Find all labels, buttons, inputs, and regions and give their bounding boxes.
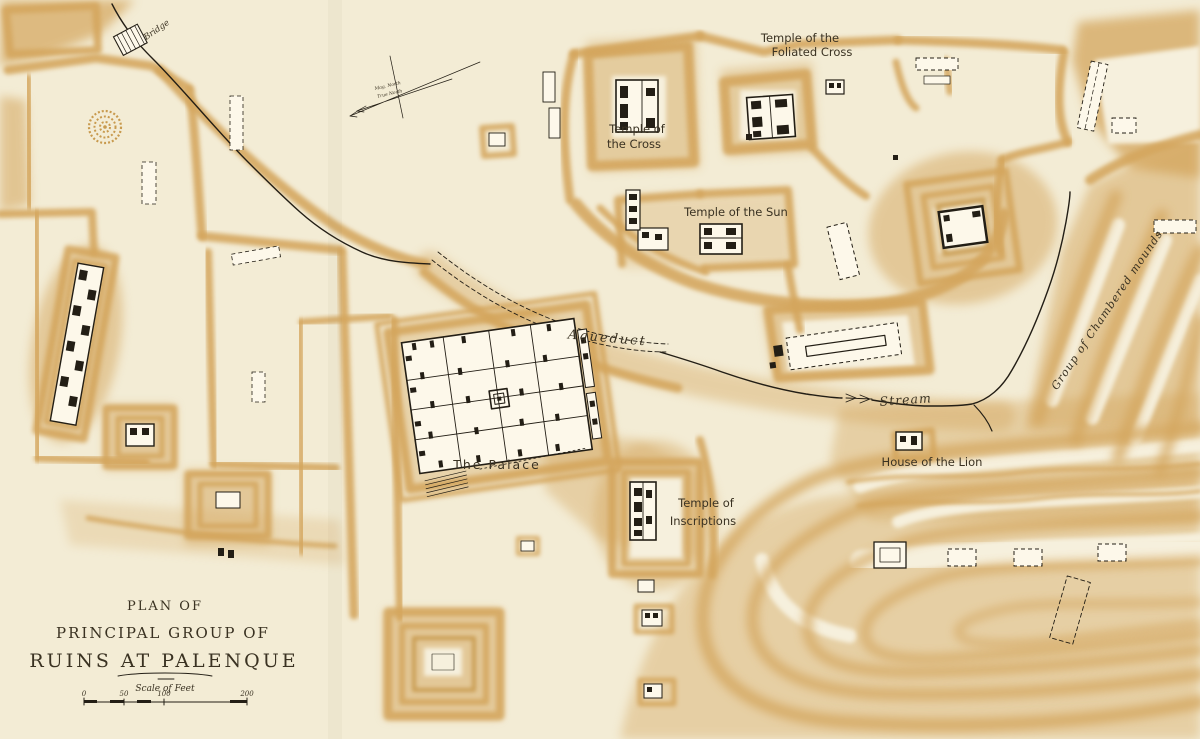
- title-line-3: RUINS AT PALENQUE: [29, 650, 298, 672]
- building-pyramid-temple: [939, 206, 988, 248]
- building-north-bar-2: [549, 108, 560, 138]
- building-north-square: [489, 133, 505, 146]
- building-northeast-dashed-small: [1112, 118, 1136, 133]
- building-top-bar-2: [924, 76, 950, 84]
- label-temple-inscriptions-1: Temple of: [677, 496, 735, 510]
- building-bar-b: [252, 372, 265, 402]
- building-top-black: [826, 80, 844, 94]
- building-temple-of-the-sun: [700, 224, 742, 254]
- palenque-map-svg: Mag. North True North Bridge Temple of t…: [0, 0, 1200, 739]
- label-house-of-the-lion: House of the Lion: [882, 455, 983, 469]
- building-right-mid-bar: [1154, 220, 1196, 233]
- building-bottom-row-1: [874, 542, 906, 568]
- label-temple-cross-2: the Cross: [607, 137, 661, 151]
- label-temple-sun: Temple of the Sun: [683, 205, 788, 219]
- scale-tick-100: 100: [157, 690, 171, 698]
- building-top-bar-1: [916, 58, 958, 70]
- building-inscriptions-small-3: [644, 684, 662, 698]
- building-tiny-mid: [521, 541, 534, 551]
- label-temple-cross-1: Temple of: [608, 122, 666, 136]
- label-temple-foliated-cross-2: Foliated Cross: [772, 45, 853, 59]
- building-inscriptions-small-1: [638, 580, 654, 592]
- building-north-bar-1: [543, 72, 555, 102]
- label-the-palace: The Palace: [452, 457, 541, 472]
- palenque-map-scan: Mag. North True North Bridge Temple of t…: [0, 0, 1200, 739]
- building-sun-north-bar: [626, 190, 640, 230]
- title-line-1: PLAN OF: [127, 599, 203, 614]
- fold-shadow: [328, 0, 342, 739]
- building-dot-2: [893, 155, 898, 160]
- title-line-2: PRINCIPAL GROUP OF: [56, 624, 270, 642]
- building-temple-of-the-foliated-cross: [747, 94, 796, 139]
- building-west-small-temple: [126, 424, 154, 446]
- label-temple-foliated-cross-1: Temple of the: [760, 31, 839, 45]
- building-bottom-row-2: [948, 549, 976, 566]
- building-bar-c: [142, 162, 156, 204]
- scale-tick-50: 50: [120, 690, 129, 698]
- scale-tick-200: 200: [239, 690, 254, 698]
- building-bottom-row-3: [1014, 549, 1042, 566]
- building-sun-west-annex: [638, 228, 668, 250]
- building-temple-of-inscriptions: [630, 482, 656, 540]
- building-inscriptions-small-2: [642, 610, 662, 626]
- building-bar-d: [230, 96, 243, 150]
- building-dot-1: [746, 134, 752, 140]
- building-bottom-row-4: [1098, 544, 1126, 561]
- building-house-of-the-lion: [896, 432, 922, 450]
- scale-tick-0: 0: [82, 690, 87, 698]
- label-temple-inscriptions-2: Inscriptions: [670, 514, 736, 528]
